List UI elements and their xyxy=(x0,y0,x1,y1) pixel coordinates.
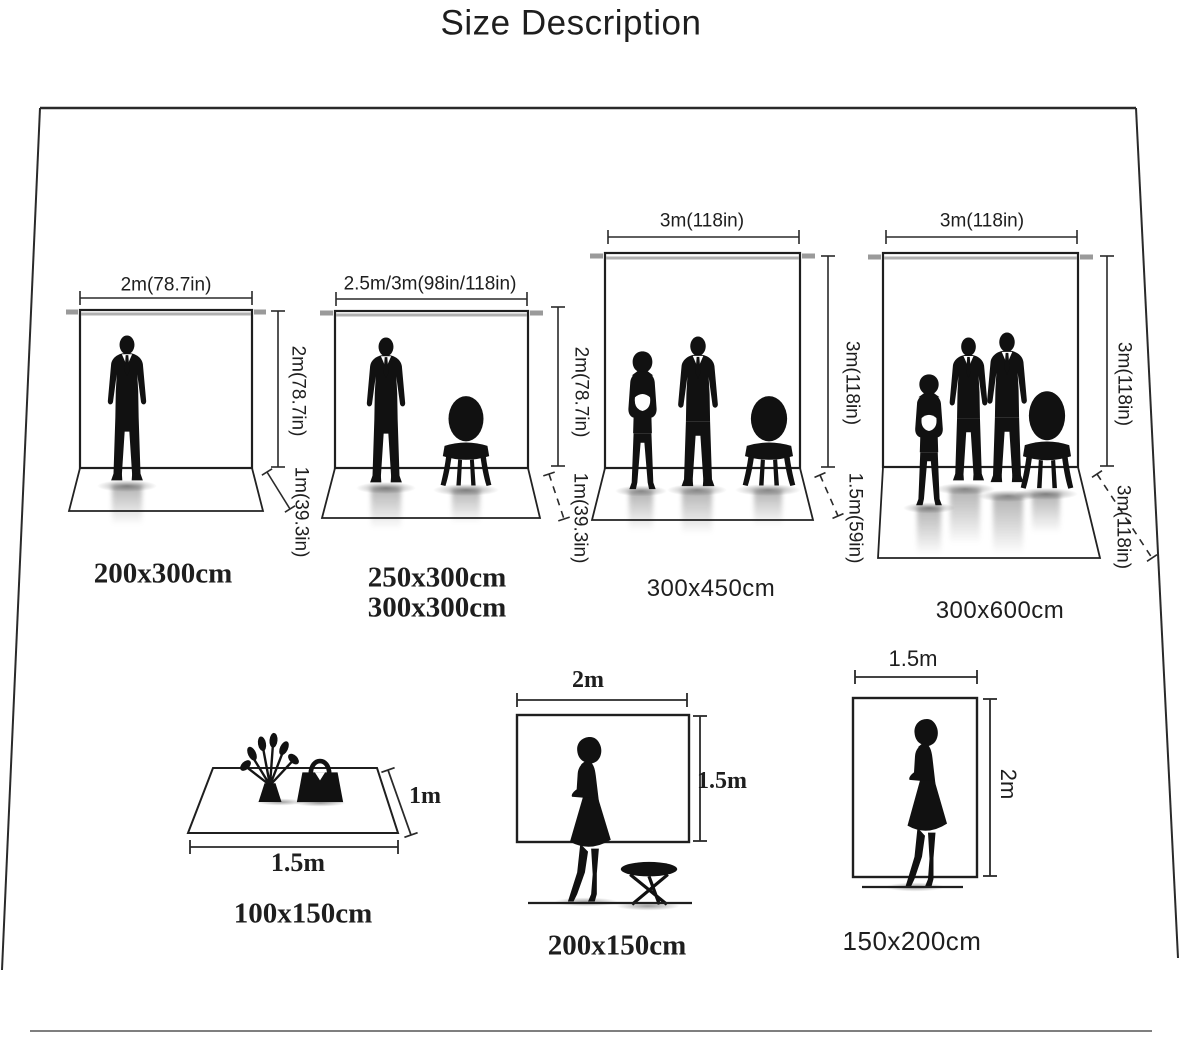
backdrop3-width-dimension xyxy=(608,230,799,244)
wide-backdrop-group xyxy=(517,693,707,911)
tall-backdrop-height-label: 2m xyxy=(997,769,1019,800)
mat-depth-label: 1m xyxy=(409,784,441,808)
woman-shadow xyxy=(615,486,667,497)
backdrop4-size-label: 300x600cm xyxy=(936,599,1065,623)
backdrop3-size-label: 300x450cm xyxy=(647,577,776,601)
backdrop2-size-label-1: 250x300cm xyxy=(368,564,507,593)
backdrop2-width-label: 2.5m/3m(98in/118in) xyxy=(344,275,517,294)
tall-backdrop-frame xyxy=(853,698,977,877)
backdrop3-floor-dimension xyxy=(815,473,844,519)
backdrop3-height-label: 3m(118in) xyxy=(843,341,862,425)
tall-backdrop-width-dimension xyxy=(855,670,977,684)
backdrop2-floor-label: 1m(39.3in) xyxy=(571,473,590,564)
backdrop4-height-dimension xyxy=(1100,256,1114,466)
backdrop3-width-label: 3m(118in) xyxy=(660,212,744,231)
stool-silhouette xyxy=(621,862,677,904)
backdrop4-width-label: 3m(118in) xyxy=(940,212,1024,231)
size-description-diagram: Size Description 2m(78.7in) 2m(78.7in) 1… xyxy=(0,0,1186,1037)
mat-size-label: 100x150cm xyxy=(234,900,373,929)
woman-shadow xyxy=(903,503,955,514)
backdrop3-floor-label: 1.5m(59in) xyxy=(846,473,865,564)
backdrop1-floor-label: 1m(39.3in) xyxy=(292,467,311,558)
wide-backdrop-width-dimension xyxy=(517,693,687,707)
backdrop3-reflections xyxy=(629,490,782,534)
chair-shadow xyxy=(433,484,499,496)
backdrop1-width-label: 2m(78.7in) xyxy=(121,276,212,295)
wide-backdrop-width-label: 2m xyxy=(572,668,604,692)
wide-backdrop-height-label: 1.5m xyxy=(697,769,747,793)
backdrop2-height-label: 2m(78.7in) xyxy=(572,347,591,438)
wide-backdrop-size-label: 200x150cm xyxy=(548,932,687,961)
tall-backdrop-group xyxy=(853,670,997,892)
backdrop4-height-label: 3m(118in) xyxy=(1115,342,1134,426)
backdrop1-floor xyxy=(69,468,263,511)
mat-group xyxy=(188,733,418,854)
backdrop4-width-dimension xyxy=(886,230,1077,244)
mat-width-label: 1.5m xyxy=(271,850,325,876)
backdrop2-size-label-2: 300x300cm xyxy=(368,594,507,623)
tall-backdrop-height-dimension xyxy=(983,699,997,876)
tall-backdrop-size-label: 150x200cm xyxy=(843,928,982,954)
backdrop2-floor-dimension xyxy=(543,472,569,521)
backdrop3-group xyxy=(590,230,844,534)
backdrop1-height-label: 2m(78.7in) xyxy=(289,346,308,437)
man-shadow xyxy=(667,484,727,496)
page-title: Size Description xyxy=(441,6,702,41)
backdrop3-height-dimension xyxy=(821,256,835,467)
backdrop2-floor xyxy=(322,468,540,518)
backdrop1-height-dimension xyxy=(271,311,285,467)
backdrop1-frame xyxy=(80,310,252,468)
backdrop2-frame xyxy=(335,311,528,468)
chair-shadow xyxy=(1014,488,1078,500)
man-shadow xyxy=(97,480,157,492)
backdrop1-group xyxy=(66,291,295,525)
backdrop2-height-dimension xyxy=(551,307,565,466)
diagram-canvas xyxy=(0,0,1186,1037)
backdrop1-size-label: 200x300cm xyxy=(94,560,233,589)
man-shadow xyxy=(356,482,416,494)
backdrop2-group xyxy=(320,292,570,529)
tall-backdrop-width-label: 1.5m xyxy=(889,648,938,670)
backdrop4-floor-label: 3m(118in) xyxy=(1114,485,1133,569)
